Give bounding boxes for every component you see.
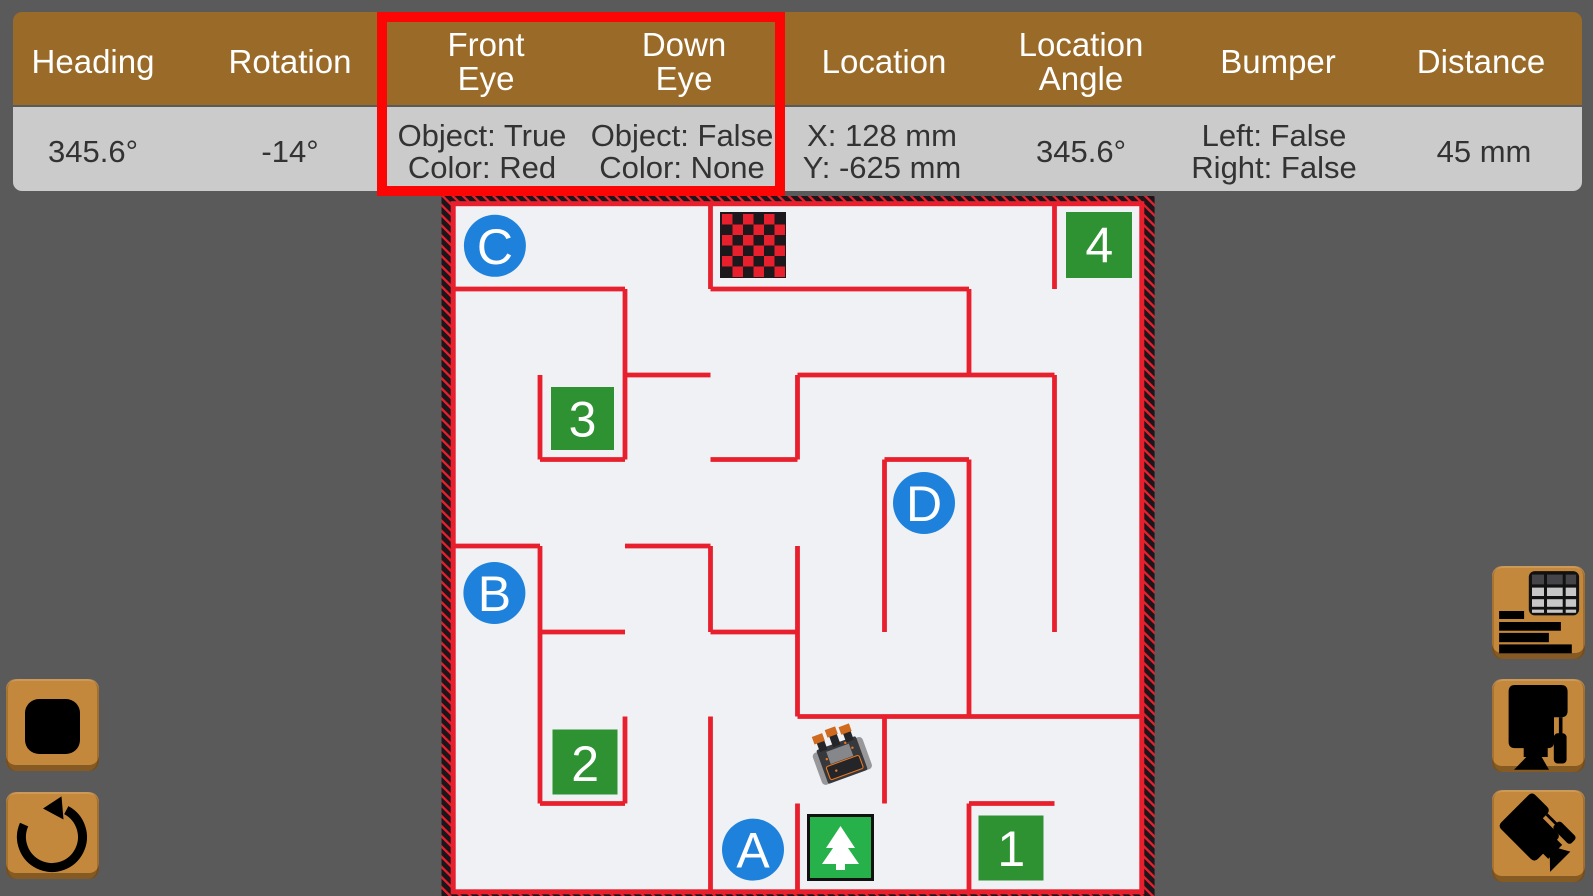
svg-text:3: 3 bbox=[569, 392, 597, 448]
svg-text:B: B bbox=[478, 566, 511, 622]
svg-text:1: 1 bbox=[997, 821, 1025, 877]
svg-text:D: D bbox=[906, 476, 942, 532]
svg-text:4: 4 bbox=[1085, 218, 1113, 274]
svg-text:A: A bbox=[736, 823, 770, 879]
svg-text:C: C bbox=[477, 219, 513, 275]
svg-text:2: 2 bbox=[571, 736, 599, 792]
